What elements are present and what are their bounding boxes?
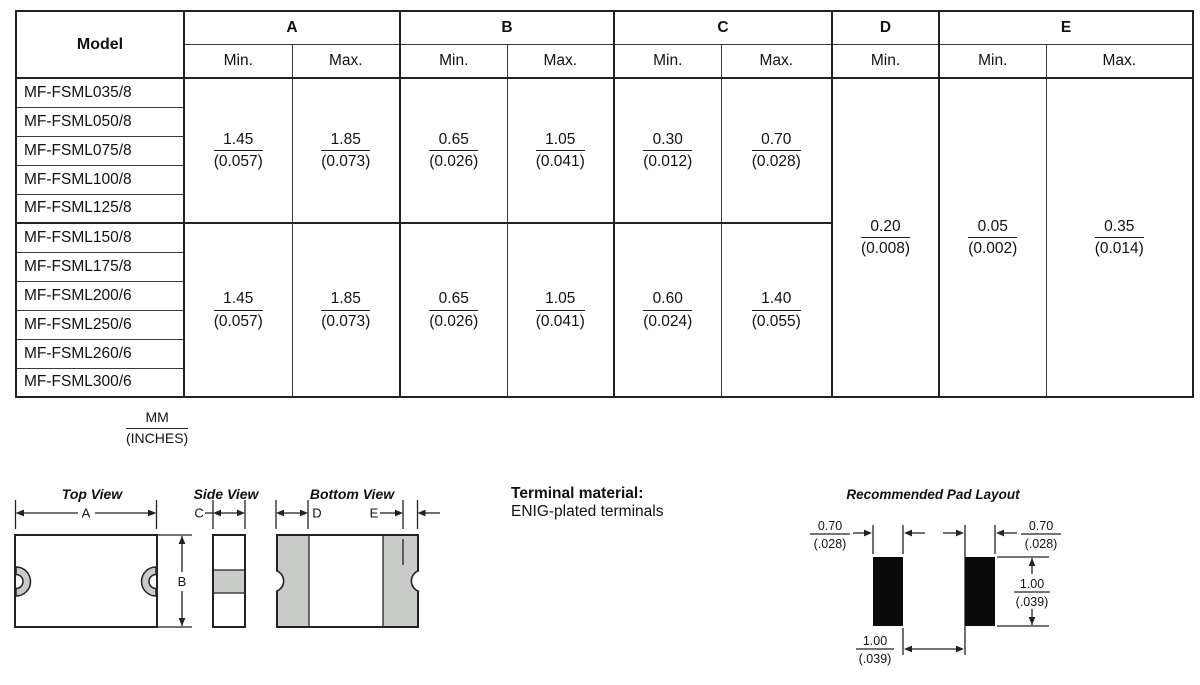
model-cell: MF-FSML150/8 — [16, 223, 184, 252]
cell-c-max-g1: 0.70(0.028) — [721, 78, 832, 223]
cell-d-min: 0.20(0.008) — [832, 78, 939, 397]
table-row: MF-FSML035/8 1.45(0.057) 1.85(0.073) 0.6… — [16, 78, 1193, 107]
side-view-core-layer — [214, 570, 244, 593]
header-b-min: Min. — [400, 44, 507, 78]
pad-gap-mm: 1.00 — [863, 634, 887, 648]
pad-width-right-in: (.028) — [1025, 537, 1058, 551]
model-cell: MF-FSML200/6 — [16, 281, 184, 310]
pad-height-in: (.039) — [1016, 595, 1049, 609]
header-c-max: Max. — [721, 44, 832, 78]
header-group-d: D — [832, 11, 939, 44]
pad-width-right-mm: 0.70 — [1029, 519, 1053, 533]
pad-layout-title: Recommended Pad Layout — [846, 487, 1020, 502]
header-c-min: Min. — [614, 44, 721, 78]
cell-b-min-g1: 0.65(0.026) — [400, 78, 507, 223]
cell-a-min-g2: 1.45(0.057) — [184, 223, 292, 397]
model-cell: MF-FSML260/6 — [16, 339, 184, 368]
cell-e-min: 0.05(0.002) — [939, 78, 1046, 397]
model-cell: MF-FSML050/8 — [16, 107, 184, 136]
model-cell: MF-FSML125/8 — [16, 194, 184, 223]
model-cell: MF-FSML300/6 — [16, 368, 184, 397]
model-cell: MF-FSML075/8 — [16, 136, 184, 165]
top-view-body — [15, 535, 157, 627]
terminal-material-heading: Terminal material: — [511, 485, 663, 503]
side-view-title: Side View — [194, 486, 260, 502]
header-b-max: Max. — [507, 44, 614, 78]
bottom-view-title: Bottom View — [310, 486, 395, 502]
terminal-material-text: ENIG-plated terminals — [511, 503, 663, 521]
pad-width-left-mm: 0.70 — [818, 519, 842, 533]
model-cell: MF-FSML250/6 — [16, 310, 184, 339]
pad-right — [965, 557, 995, 626]
bottom-view-drawing: Bottom View D E — [270, 483, 450, 655]
header-group-c: C — [614, 11, 832, 44]
model-cell: MF-FSML175/8 — [16, 252, 184, 281]
units-note: MM(INCHES) — [126, 409, 188, 446]
units-inches: (INCHES) — [126, 429, 188, 447]
header-model: Model — [16, 11, 184, 78]
dim-label-e: E — [370, 506, 379, 521]
header-a-min: Min. — [184, 44, 292, 78]
header-e-min: Min. — [939, 44, 1046, 78]
dim-label-a: A — [82, 506, 91, 521]
header-group-e: E — [939, 11, 1193, 44]
cell-c-max-g2: 1.40(0.055) — [721, 223, 832, 397]
cell-a-max-g2: 1.85(0.073) — [292, 223, 400, 397]
pad-gap-in: (.039) — [859, 652, 892, 666]
header-d-min: Min. — [832, 44, 939, 78]
cell-b-min-g2: 0.65(0.026) — [400, 223, 507, 397]
top-view-title: Top View — [62, 486, 124, 502]
header-group-a: A — [184, 11, 400, 44]
cell-c-min-g2: 0.60(0.024) — [614, 223, 721, 397]
model-cell: MF-FSML035/8 — [16, 78, 184, 107]
dim-label-c: C — [194, 506, 203, 521]
side-view-drawing: Side View C — [196, 483, 276, 655]
cell-c-min-g1: 0.30(0.012) — [614, 78, 721, 223]
pad-height-mm: 1.00 — [1020, 577, 1044, 591]
datasheet-page: Model A B C D E Min. Max. Min. Max. Min.… — [0, 0, 1200, 685]
cell-b-max-g2: 1.05(0.041) — [507, 223, 614, 397]
pad-width-left-in: (.028) — [814, 537, 847, 551]
top-view-drawing: Top View A B — [8, 483, 200, 655]
cell-a-min-g1: 1.45(0.057) — [184, 78, 292, 223]
pad-left — [873, 557, 903, 626]
cell-e-max: 0.35(0.014) — [1046, 78, 1193, 397]
dimensions-table: Model A B C D E Min. Max. Min. Max. Min.… — [15, 10, 1194, 398]
dim-label-b: B — [178, 574, 187, 589]
pad-layout-drawing: Recommended Pad Layout 0.70 (.028) 0.70 … — [795, 483, 1095, 683]
header-group-b: B — [400, 11, 614, 44]
terminal-material-note: Terminal material: ENIG-plated terminals — [511, 485, 663, 520]
dim-label-d: D — [312, 506, 321, 521]
header-a-max: Max. — [292, 44, 400, 78]
cell-a-max-g1: 1.85(0.073) — [292, 78, 400, 223]
units-mm: MM — [126, 410, 188, 429]
model-cell: MF-FSML100/8 — [16, 165, 184, 194]
header-e-max: Max. — [1046, 44, 1193, 78]
cell-b-max-g1: 1.05(0.041) — [507, 78, 614, 223]
